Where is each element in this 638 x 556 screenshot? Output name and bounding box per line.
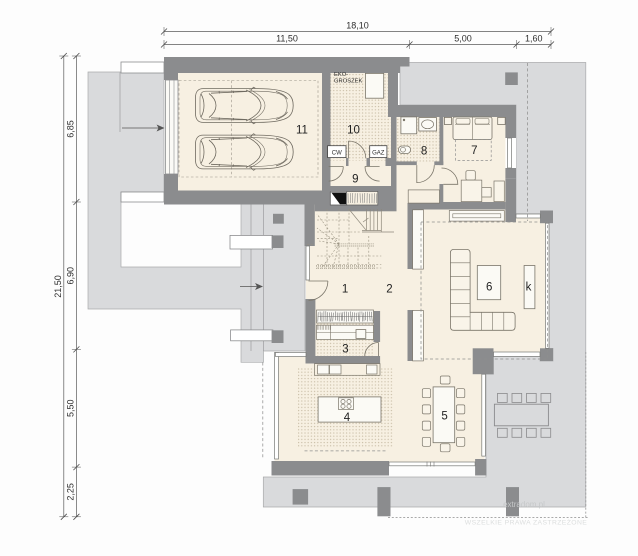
svg-text:k: k	[526, 282, 532, 294]
svg-text:8: 8	[421, 146, 427, 158]
svg-text:EKO-: EKO-	[334, 72, 348, 78]
svg-text:5: 5	[441, 411, 447, 423]
svg-text:1: 1	[342, 284, 348, 296]
svg-text:WSZELKIE PRAWA ZASTRZEŻONE: WSZELKIE PRAWA ZASTRZEŻONE	[465, 518, 588, 527]
svg-text:11: 11	[296, 125, 308, 137]
svg-text:2: 2	[386, 284, 392, 296]
svg-text:GROSZEK: GROSZEK	[334, 78, 362, 84]
svg-text:1,60: 1,60	[525, 34, 543, 44]
svg-text:GAZ: GAZ	[372, 150, 385, 156]
svg-text:extradom.pl: extradom.pl	[503, 500, 545, 509]
svg-text:5,50: 5,50	[65, 399, 75, 417]
svg-text:11,50: 11,50	[276, 34, 298, 44]
svg-text:6,85: 6,85	[65, 120, 75, 138]
svg-text:21,50: 21,50	[53, 275, 63, 298]
svg-text:6,90: 6,90	[65, 267, 75, 285]
svg-text:18,10: 18,10	[346, 21, 369, 31]
svg-text:10: 10	[347, 125, 360, 137]
svg-text:7: 7	[471, 145, 477, 157]
svg-text:9: 9	[352, 173, 358, 185]
svg-text:4: 4	[344, 412, 351, 424]
svg-text:6: 6	[486, 282, 492, 294]
svg-text:CW: CW	[332, 150, 342, 156]
svg-text:5,00: 5,00	[454, 34, 472, 44]
svg-text:2,25: 2,25	[65, 483, 75, 501]
svg-text:3: 3	[342, 344, 348, 356]
